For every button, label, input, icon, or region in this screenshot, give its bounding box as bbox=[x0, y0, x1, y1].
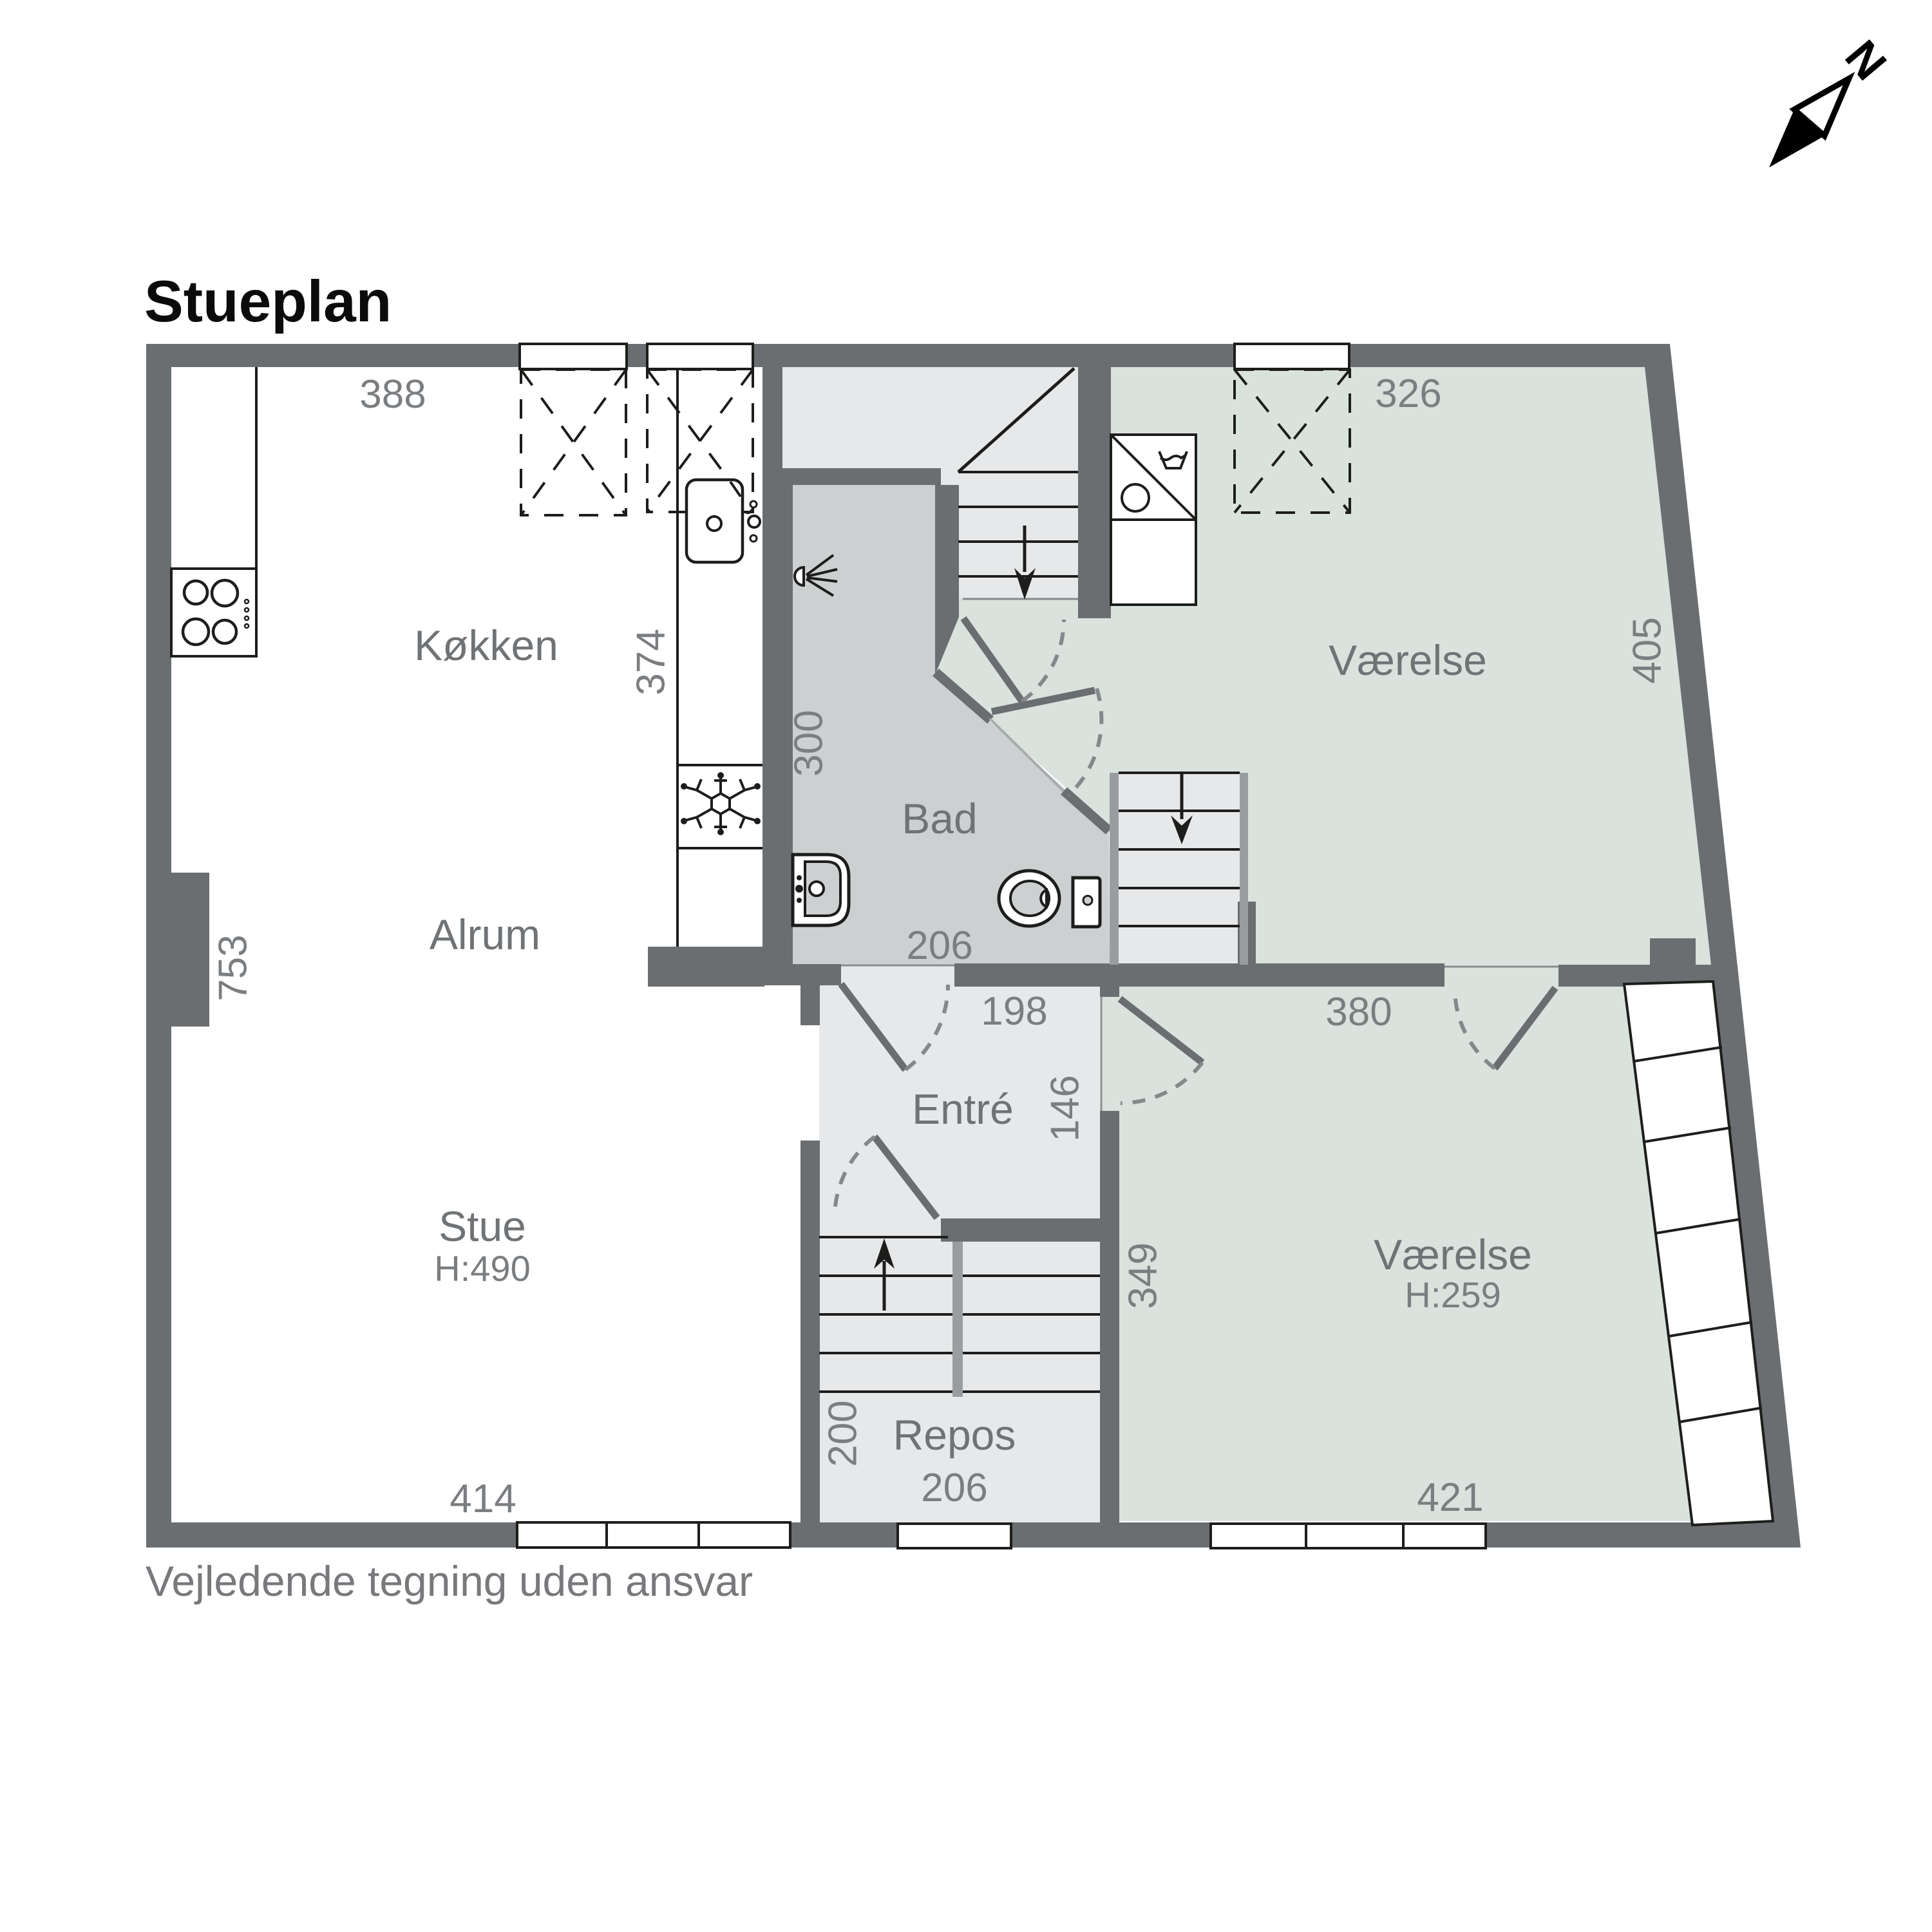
svg-text:Værelse: Værelse bbox=[1329, 636, 1487, 684]
svg-text:388: 388 bbox=[359, 372, 426, 417]
svg-text:374: 374 bbox=[629, 629, 673, 695]
svg-text:146: 146 bbox=[1043, 1075, 1087, 1141]
svg-text:326: 326 bbox=[1375, 372, 1441, 416]
svg-text:200: 200 bbox=[820, 1400, 865, 1466]
svg-text:Værelse: Værelse bbox=[1374, 1231, 1532, 1278]
svg-text:Vejledende tegning uden ansvar: Vejledende tegning uden ansvar bbox=[146, 1557, 753, 1605]
svg-text:H:259: H:259 bbox=[1405, 1274, 1501, 1315]
svg-text:753: 753 bbox=[211, 934, 255, 1001]
svg-text:421: 421 bbox=[1417, 1475, 1483, 1520]
svg-text:Alrum: Alrum bbox=[430, 911, 540, 958]
svg-text:H:490: H:490 bbox=[434, 1248, 530, 1289]
svg-text:414: 414 bbox=[450, 1477, 516, 1521]
svg-text:349: 349 bbox=[1121, 1242, 1165, 1309]
svg-text:380: 380 bbox=[1325, 990, 1392, 1034]
svg-text:206: 206 bbox=[906, 923, 972, 968]
svg-text:Repos: Repos bbox=[893, 1411, 1016, 1459]
svg-text:198: 198 bbox=[981, 989, 1047, 1034]
svg-text:300: 300 bbox=[786, 710, 831, 776]
svg-text:Køkken: Køkken bbox=[414, 621, 558, 669]
svg-text:Bad: Bad bbox=[902, 795, 977, 842]
svg-text:405: 405 bbox=[1625, 617, 1669, 683]
svg-text:Stue: Stue bbox=[439, 1202, 526, 1250]
svg-text:Entré: Entré bbox=[912, 1085, 1014, 1133]
svg-text:Stueplan: Stueplan bbox=[144, 269, 392, 334]
svg-text:206: 206 bbox=[921, 1466, 987, 1510]
